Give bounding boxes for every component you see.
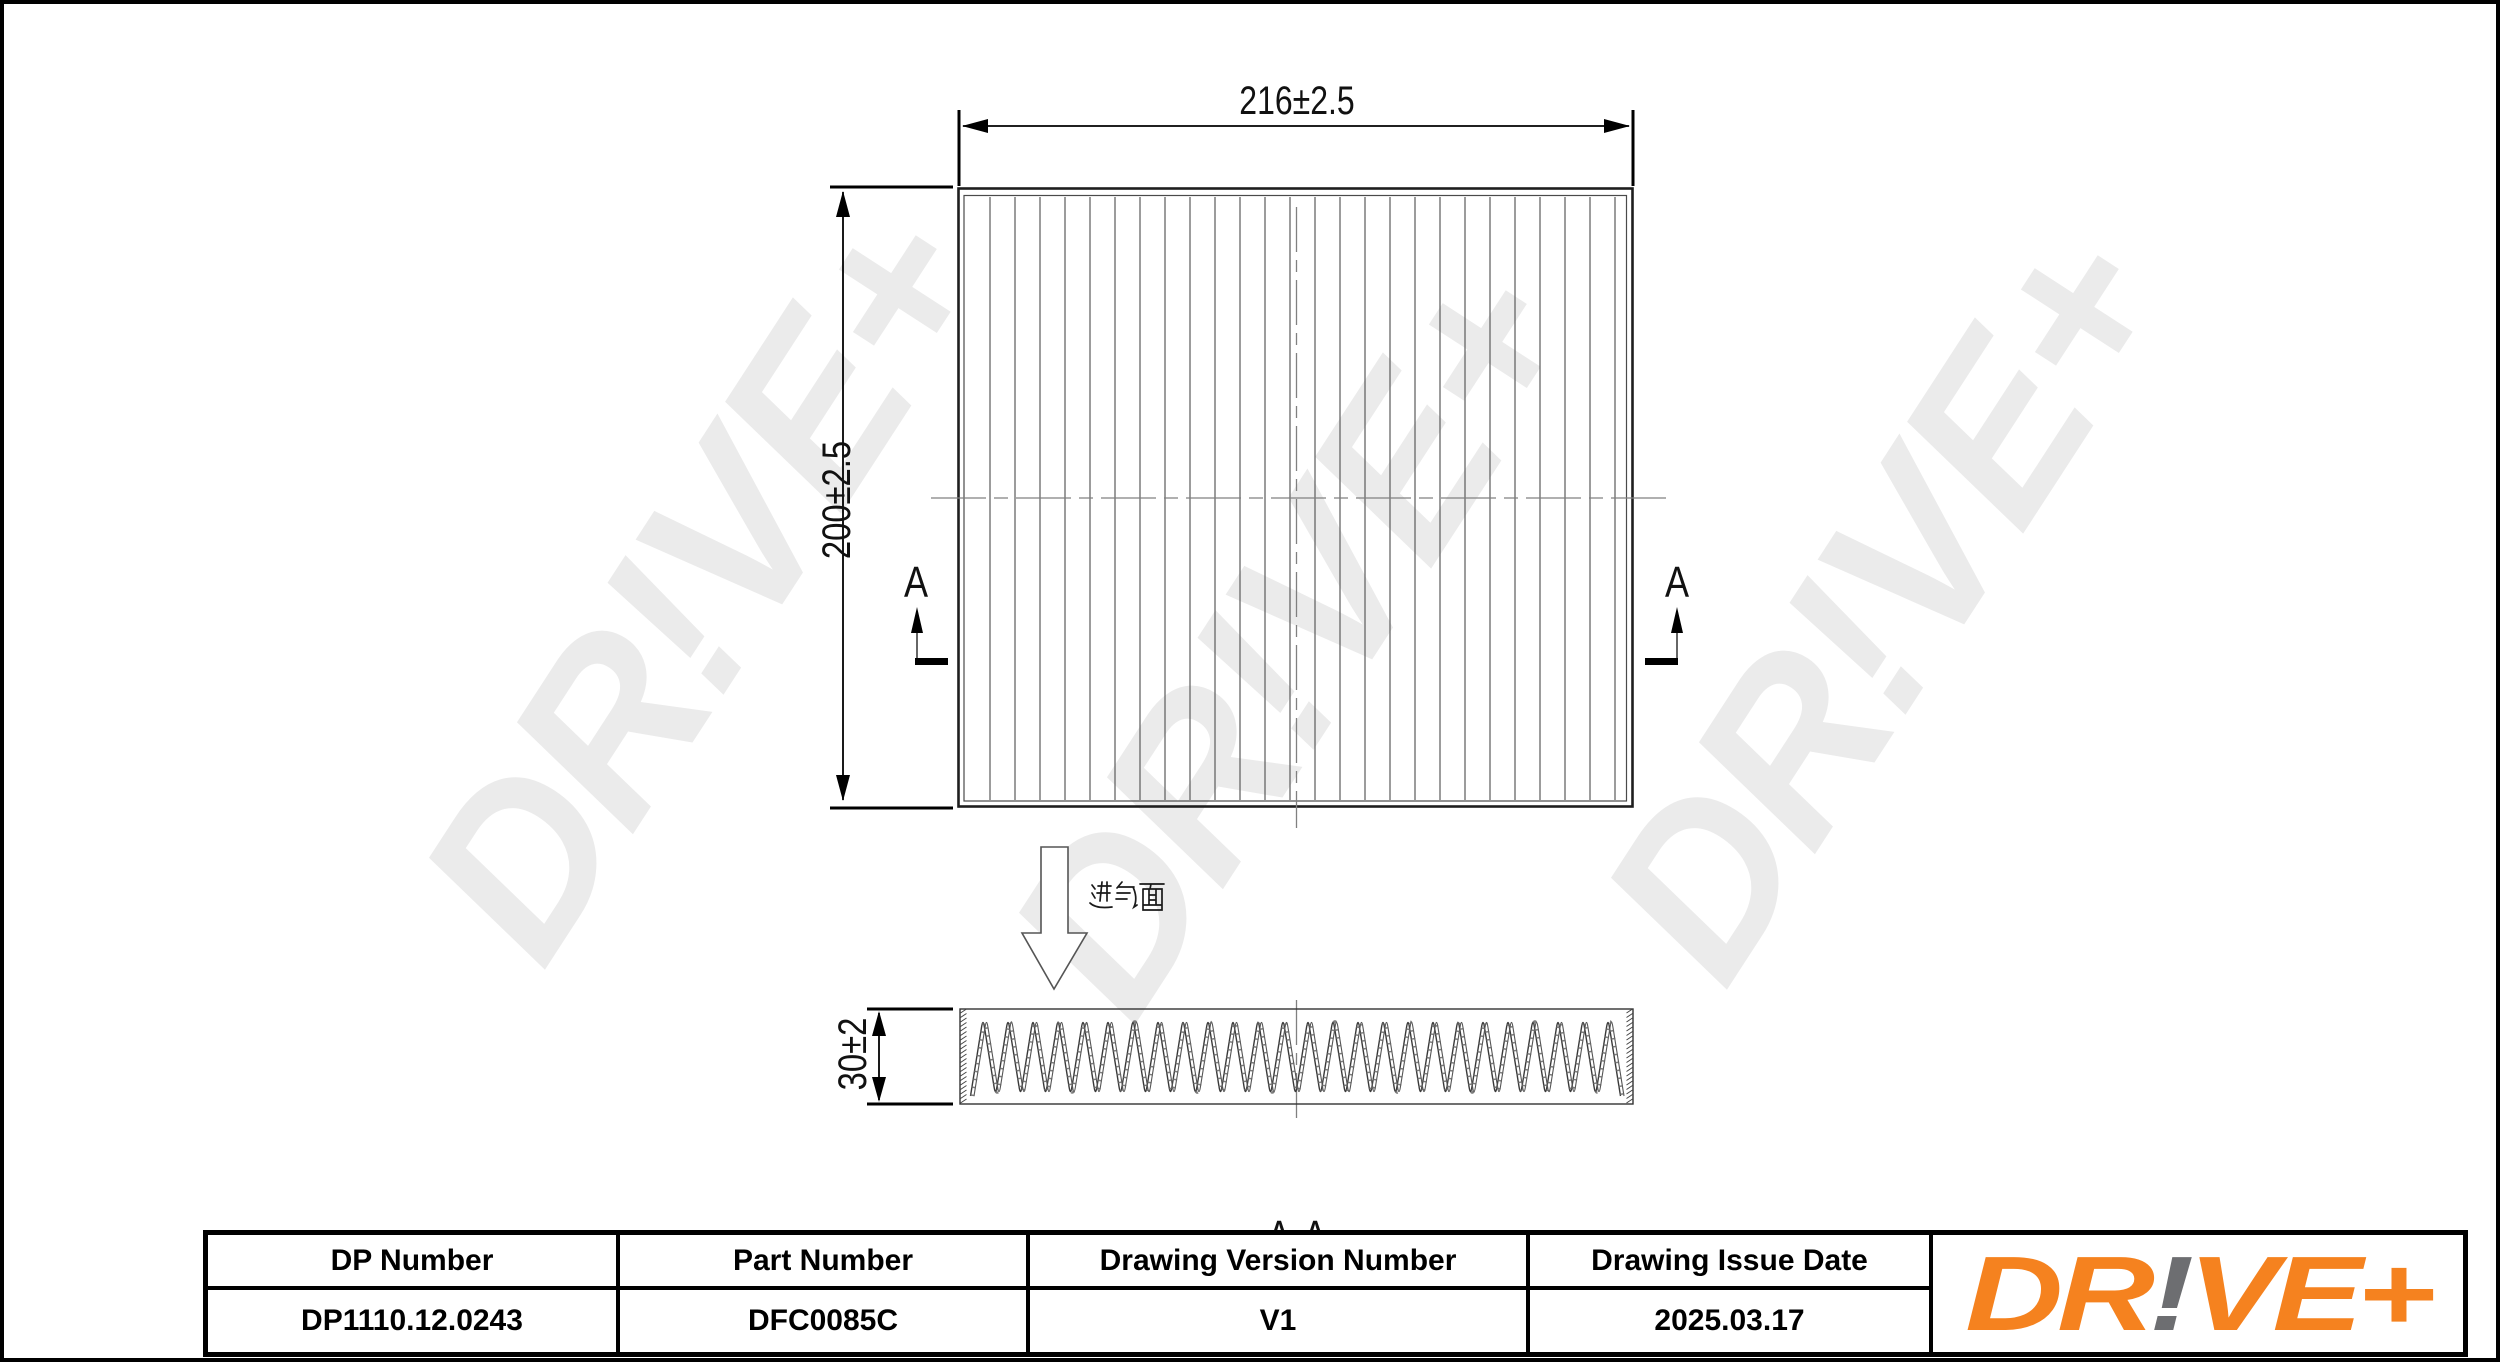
part-number-header: Part Number bbox=[620, 1235, 1030, 1290]
airflow-down-arrow-icon bbox=[1022, 847, 1087, 989]
issue-date-value: 2025.03.17 bbox=[1530, 1290, 1933, 1352]
arrowhead-left bbox=[962, 119, 988, 133]
section-marker-left: A bbox=[904, 558, 928, 607]
height-dimension-label: 200±2.5 bbox=[814, 441, 859, 559]
title-block-table: DP Number Part Number Drawing Version Nu… bbox=[203, 1230, 2468, 1357]
issue-date-header: Drawing Issue Date bbox=[1530, 1235, 1933, 1290]
glyph-qi bbox=[1116, 882, 1137, 907]
depth-dimension: 30±2 bbox=[830, 1009, 953, 1104]
width-dimension: 216±2.5 bbox=[959, 78, 1633, 186]
logo-text-dr: DR bbox=[1966, 1235, 2150, 1353]
airflow-indicator bbox=[1022, 847, 1164, 989]
brand-logo: DR!VE+ bbox=[1933, 1235, 2463, 1352]
arrowhead-down bbox=[836, 775, 850, 801]
technical-drawing-page: DR!VE+ DR!VE+ DR!VE+ 216±2.5 bbox=[0, 0, 2500, 1362]
depth-dimension-label: 30±2 bbox=[830, 1018, 875, 1091]
section-view-label: A-A bbox=[1267, 1212, 1327, 1230]
logo-exclamation: ! bbox=[2149, 1235, 2188, 1353]
filter-drawing: 216±2.5 200±2.5 A A bbox=[0, 0, 2500, 1230]
arrowhead-up bbox=[836, 191, 850, 217]
glyph-mian bbox=[1140, 884, 1164, 910]
logo-text-ve-plus: VE+ bbox=[2188, 1235, 2430, 1353]
drawing-version-value: V1 bbox=[1030, 1290, 1530, 1352]
drawing-version-header: Drawing Version Number bbox=[1030, 1235, 1530, 1290]
glyph-jin bbox=[1090, 882, 1112, 908]
dp-number-header: DP Number bbox=[208, 1235, 620, 1290]
dp-number-value: DP1110.12.0243 bbox=[208, 1290, 620, 1352]
section-cut-bar bbox=[1645, 658, 1678, 665]
section-cut-bar bbox=[915, 658, 948, 665]
part-number-value: DFC0085C bbox=[620, 1290, 1030, 1352]
section-arrow-left bbox=[911, 607, 923, 633]
arrowhead-right bbox=[1604, 119, 1630, 133]
pleated-media bbox=[971, 1022, 1625, 1096]
section-arrow-right bbox=[1671, 607, 1683, 633]
section-cut-left: A bbox=[904, 558, 948, 665]
intake-face-label-cn bbox=[1090, 882, 1164, 910]
section-marker-right: A bbox=[1665, 558, 1689, 607]
width-dimension-label: 216±2.5 bbox=[1239, 78, 1354, 123]
centerlines bbox=[931, 207, 1668, 1122]
section-cut-right: A bbox=[1645, 558, 1689, 665]
